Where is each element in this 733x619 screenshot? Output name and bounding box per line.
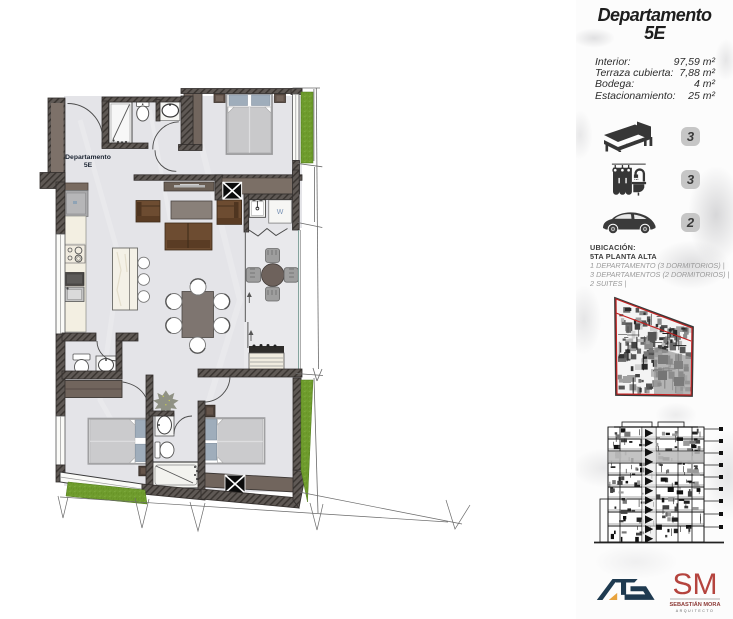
svg-text:SEBASTIÁN MORA: SEBASTIÁN MORA bbox=[670, 601, 721, 608]
svg-text:ARQUITECTO: ARQUITECTO bbox=[676, 609, 715, 613]
svg-text:SM: SM bbox=[673, 568, 718, 601]
svg-text:5E: 5E bbox=[84, 162, 93, 169]
svg-text:Departamento: Departamento bbox=[65, 154, 111, 161]
svg-text:W: W bbox=[277, 209, 284, 216]
